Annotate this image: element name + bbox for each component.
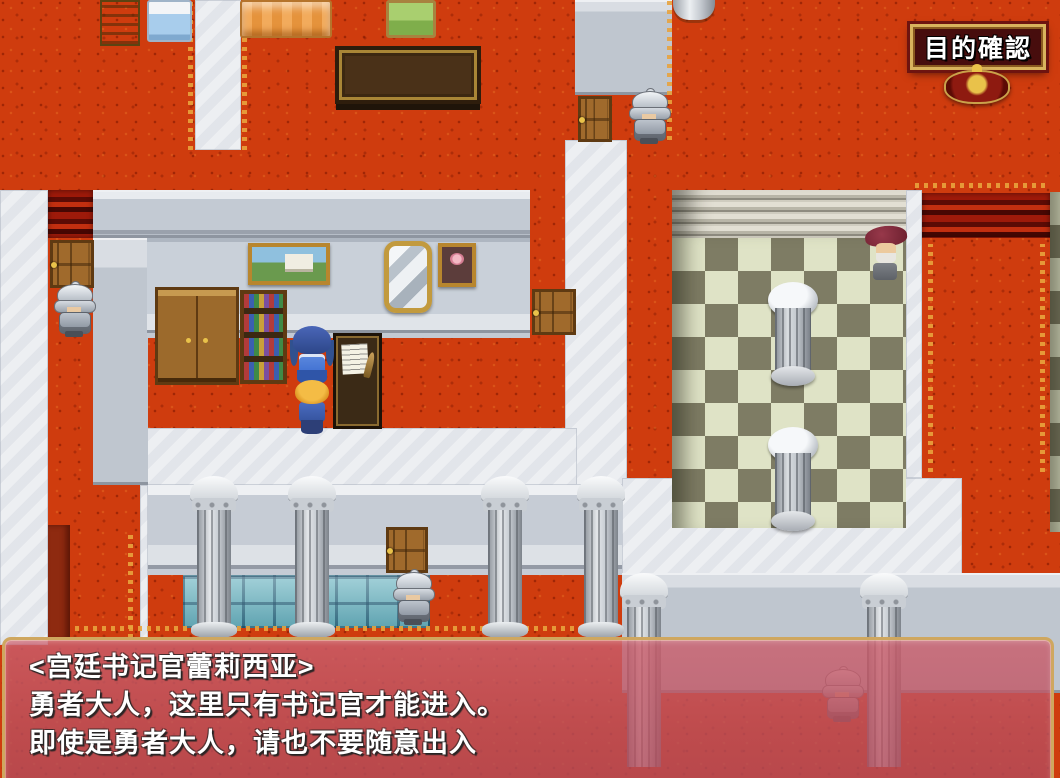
game-viewport: 目的確認 <宫廷书记官蕾莉西亚> 勇者大人，这里只有书记官才能进入。 即使是勇者… bbox=[0, 0, 1060, 778]
large-table bbox=[335, 46, 481, 104]
door-north[interactable] bbox=[578, 96, 612, 142]
npc-elder-nobleman[interactable] bbox=[863, 224, 907, 282]
column-pillar bbox=[481, 476, 529, 640]
dialogue-line-1: 勇者大人，这里只有书记官才能进入。 bbox=[29, 686, 1031, 724]
royal-crest-icon bbox=[944, 70, 1010, 104]
stone-path bbox=[140, 485, 148, 638]
gold-trim bbox=[128, 530, 133, 638]
door-south[interactable] bbox=[386, 527, 428, 573]
objective-confirm-label: 目的確認 bbox=[924, 29, 1032, 65]
wall-segment bbox=[93, 190, 530, 238]
bed-orange bbox=[240, 0, 332, 38]
scribe-desk[interactable] bbox=[333, 333, 382, 429]
door-office[interactable] bbox=[532, 289, 576, 335]
carpet-shadow-strip bbox=[48, 525, 70, 640]
npc-guard-south[interactable] bbox=[391, 569, 435, 627]
round-pillar bbox=[768, 282, 818, 388]
npc-guard-north[interactable] bbox=[627, 88, 671, 146]
player-hero bbox=[290, 380, 334, 438]
checker-floor-edge bbox=[1050, 192, 1060, 532]
wall-segment bbox=[93, 238, 148, 485]
wall-segment bbox=[575, 0, 672, 95]
curtain-stripes bbox=[922, 193, 1050, 238]
dialogue-window[interactable]: <宫廷书记官蕾莉西亚> 勇者大人，这里只有书记官才能进入。 即使是勇者大人，请也… bbox=[2, 637, 1054, 778]
mirror bbox=[384, 241, 432, 313]
gold-trim bbox=[1040, 244, 1045, 472]
npc-court-scribe-lelicia[interactable] bbox=[290, 326, 334, 384]
dialogue-text: <宫廷书记官蕾莉西亚> 勇者大人，这里只有书记官才能进入。 即使是勇者大人，请也… bbox=[5, 640, 1051, 762]
stone-path bbox=[906, 190, 922, 478]
stone-path bbox=[195, 0, 241, 150]
column-pillar bbox=[190, 476, 238, 640]
round-pillar bbox=[768, 427, 818, 533]
gold-trim bbox=[928, 244, 933, 472]
dialogue-line-2: 即使是勇者大人，请也不要随意出入 bbox=[29, 724, 1031, 762]
column-pillar bbox=[288, 476, 336, 640]
wardrobe bbox=[155, 287, 239, 385]
flower-painting bbox=[438, 243, 476, 287]
bed-blue bbox=[147, 0, 192, 42]
curtain-stripes bbox=[48, 190, 93, 238]
bookshelf bbox=[240, 290, 287, 384]
pillar-base-top bbox=[673, 0, 715, 20]
column-pillar bbox=[577, 476, 625, 640]
stone-path bbox=[0, 190, 48, 645]
bed-green bbox=[386, 0, 436, 38]
golden-chair bbox=[100, 0, 140, 46]
gold-trim bbox=[915, 183, 1050, 188]
castle-painting bbox=[248, 243, 330, 285]
npc-guard-west[interactable] bbox=[52, 281, 96, 339]
dialogue-speaker: <宫廷书记官蕾莉西亚> bbox=[29, 648, 1031, 686]
